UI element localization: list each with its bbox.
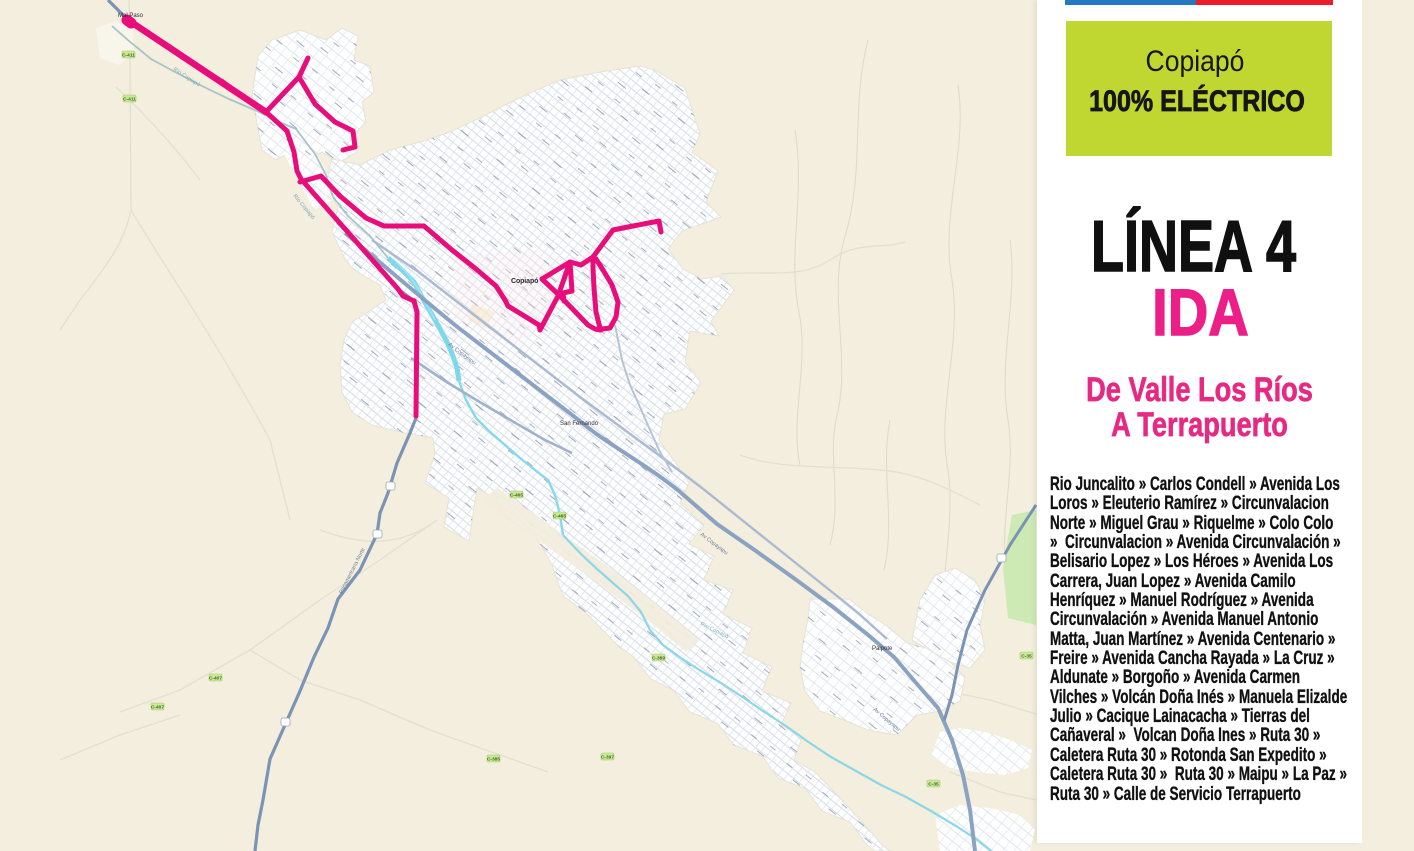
svg-text:San Fernando: San Fernando xyxy=(560,421,599,427)
svg-text:Mal Paso: Mal Paso xyxy=(118,13,144,19)
svg-text:C-397: C-397 xyxy=(601,755,614,761)
svg-text:C-35: C-35 xyxy=(1021,654,1032,660)
svg-text:C-411: C-411 xyxy=(123,97,136,103)
svg-text:C-411: C-411 xyxy=(122,53,135,59)
svg-text:Paipote: Paipote xyxy=(872,646,893,652)
svg-text:C-407: C-407 xyxy=(151,705,164,711)
svg-text:Copiapó: Copiapó xyxy=(511,278,538,285)
svg-text:C-385: C-385 xyxy=(487,757,500,763)
svg-text:C-407: C-407 xyxy=(209,676,222,682)
svg-text:C-389: C-389 xyxy=(652,656,665,662)
svg-text:C-35: C-35 xyxy=(928,782,939,788)
svg-text:C-465: C-465 xyxy=(510,493,523,499)
svg-text:C-465: C-465 xyxy=(553,514,566,520)
